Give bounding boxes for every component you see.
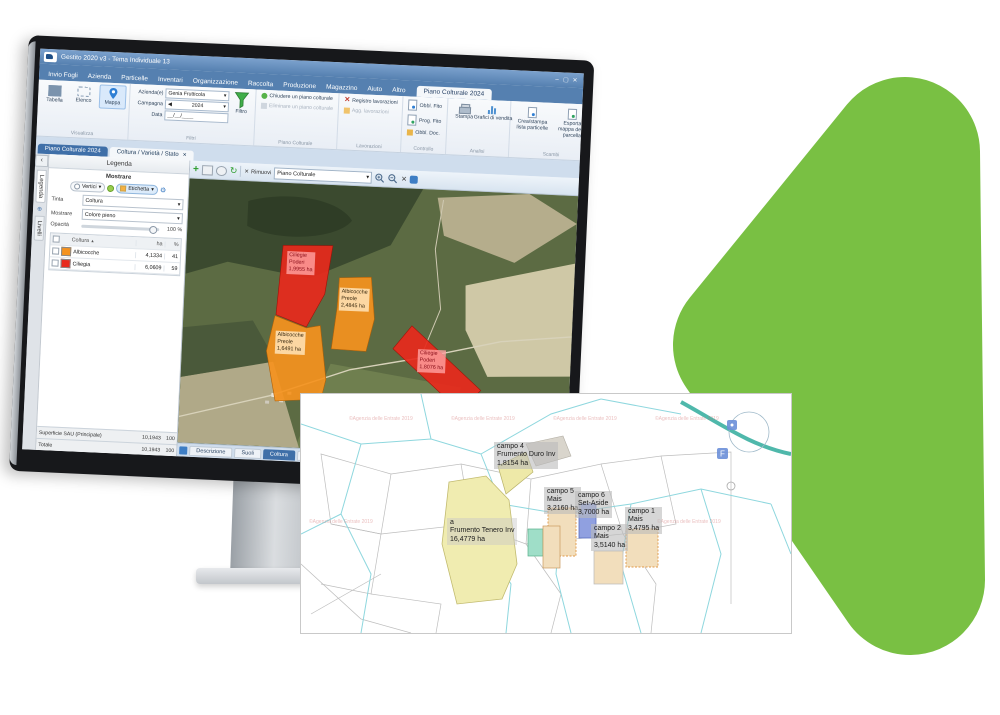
opacity-value: 100 %	[162, 226, 182, 233]
opacity-slider[interactable]	[81, 224, 159, 231]
legend-panel: Legenda Mostrare Vertici ▾ Etichetta	[36, 154, 190, 456]
crop-ha: 6,0609	[134, 264, 163, 271]
vertici-label: Vertici	[82, 184, 97, 191]
crop-name: Ciliegia	[72, 261, 134, 270]
rimuovi-label: Rimuovi	[251, 169, 271, 176]
document-icon	[408, 114, 417, 125]
tinta-value: Coltura	[85, 197, 103, 204]
green-dot-icon	[261, 93, 267, 99]
refresh-button[interactable]: ↻	[230, 166, 238, 175]
remove-icon: ✕	[244, 169, 249, 175]
row-checkbox[interactable]	[52, 247, 59, 254]
info-icon[interactable]	[410, 175, 418, 183]
circle-select-tool[interactable]	[216, 165, 227, 175]
summary-ha: 10,1943	[135, 434, 161, 441]
etichetta-toggle[interactable]: Etichetta ▾	[116, 183, 158, 195]
chiudi-piano-label: Chiudere un piano colturale	[269, 93, 333, 102]
opacita-label: Opacità	[50, 221, 78, 228]
chevron-down-icon: ▾	[178, 202, 181, 208]
elimina-piano-button[interactable]: Eliminare un piano colturale	[259, 102, 335, 113]
tab-coltura[interactable]: Coltura	[263, 449, 295, 460]
col-ha[interactable]: ha	[135, 240, 164, 247]
registro-label: Registro lavorazioni	[352, 97, 398, 105]
funnel-icon	[234, 92, 250, 110]
obbl-fito-label: Obbl. Fito	[419, 102, 442, 109]
sort-asc-icon: ▲	[90, 238, 94, 243]
filter-fields: Azienda(e) Genia Frutticola ▾ Campagna ◀…	[132, 86, 229, 124]
map-pin-icon	[108, 88, 118, 99]
document-export-icon	[568, 109, 577, 120]
agg-lavorazioni-button[interactable]: Agg. lavorazioni	[342, 106, 391, 116]
field-label: AlbicocchePreole2,4845 ha	[339, 287, 370, 311]
slider-thumb[interactable]	[149, 225, 157, 233]
ribbon-group-scambi: Crea/stampa lista particelle Esporta map…	[509, 101, 583, 161]
field-albicocche-2[interactable]	[264, 315, 328, 403]
azienda-value: Genia Frutticola	[168, 91, 205, 99]
grafici-button[interactable]: Grafici di vendita	[479, 102, 507, 125]
legend-table: Coltura ▲ ha % Albicocche 4,1334 41	[48, 232, 182, 276]
panel-icon	[179, 446, 187, 454]
crop-pct: 59	[163, 265, 179, 272]
elenco-label: Elenco	[75, 97, 91, 104]
label-swatch-icon	[120, 185, 126, 191]
lasso-icon	[77, 86, 90, 97]
campagna-value: 2024	[192, 103, 204, 110]
printer-icon	[459, 104, 470, 113]
document-icon	[408, 99, 417, 110]
data-input[interactable]: __/__/____	[164, 110, 228, 123]
filtro-button[interactable]: Filtro	[230, 90, 252, 116]
etichetta-label: Etichetta	[128, 186, 149, 193]
grafici-label: Grafici di vendita	[474, 114, 513, 122]
red-x-icon: ✕	[344, 96, 350, 103]
crea-lista-button[interactable]: Crea/stampa lista particelle	[513, 103, 552, 135]
label-frumento-tenero: aFrumento Tenero Inv16,4779 ha	[447, 518, 517, 545]
field-label: AlbicocchePreole1,6491 ha	[275, 331, 306, 355]
parcel-tan[interactable]	[543, 526, 560, 568]
esporta-mappa-label: Esporta mappa della parcella	[555, 120, 583, 140]
parcel-green[interactable]	[528, 529, 543, 556]
colore-select[interactable]: Colore pieno ▾	[82, 209, 183, 225]
data-label: Data	[132, 111, 162, 118]
tabella-label: Tabella	[46, 97, 63, 104]
page: { "ui": { "caret": "▾", "sort_icon": "▲"…	[0, 0, 1000, 715]
tinta-select[interactable]: Coltura ▾	[82, 195, 183, 211]
divider	[240, 166, 241, 177]
ribbon-group-piano: Chiudere un piano colturale Eliminare un…	[254, 90, 339, 150]
registro-lavorazioni-button[interactable]: ✕ Registro lavorazioni	[342, 95, 400, 107]
swatch-col	[62, 236, 70, 243]
watermark: ©Agenzia delle Entrate 2019	[657, 519, 721, 525]
color-swatch-albicocche	[61, 247, 71, 256]
azienda-label: Azienda(e)	[133, 89, 163, 96]
marker-dot	[731, 424, 734, 427]
prog-fito-label: Prog. Fito	[419, 117, 442, 124]
mappa-label: Mappa	[104, 100, 120, 107]
elimina-piano-label: Eliminare un piano colturale	[269, 103, 333, 112]
watermark: ©Agenzia delle Entrate 2019	[451, 416, 515, 422]
obbl-fito-button[interactable]: Obbl. Fito	[406, 98, 444, 113]
summary-pct: 100	[161, 435, 175, 442]
add-feature-button[interactable]: +	[193, 164, 199, 174]
close-button[interactable]: ✕	[570, 77, 579, 84]
document-check-icon	[528, 107, 537, 118]
zoom-out-icon[interactable]	[388, 173, 398, 183]
watermark: ©Agenzia delle Entrate 2019	[553, 416, 617, 422]
maximize-button[interactable]: ▢	[561, 76, 570, 83]
ribbon-group-controllo: Obbl. Fito Prog. Fito Obbl. Doc. Control…	[401, 96, 448, 154]
prog-fito-button[interactable]: Prog. Fito	[406, 113, 444, 128]
color-swatch-ciliegia	[60, 259, 70, 268]
layer-value: Piano Colturale	[277, 170, 315, 178]
crop-ha: 4,1334	[135, 252, 164, 259]
rect-select-tool[interactable]	[202, 165, 213, 175]
chevron-down-icon: ▾	[366, 174, 369, 180]
watermark: ©Agenzia delle Entrate 2019	[655, 416, 719, 422]
col-coltura[interactable]: Coltura ▲	[72, 237, 136, 246]
esporta-mappa-button[interactable]: Esporta mappa della parcella	[553, 105, 583, 143]
tab-descrizione[interactable]: Descrizione	[189, 445, 233, 457]
campagna-label: Campagna	[133, 100, 163, 107]
colore-value: Colore pieno	[85, 211, 116, 218]
ribbon-group-filtri: Azienda(e) Genia Frutticola ▾ Campagna ◀…	[128, 84, 256, 146]
ribbon-group-visualizza: Tabella Elenco Mappa Visualizza	[36, 80, 130, 140]
filtro-label: Filtro	[235, 109, 247, 116]
tab-suoli[interactable]: Suoli	[234, 447, 261, 458]
chevron-down-icon: ▾	[223, 104, 226, 110]
side-tab-livelli[interactable]: Livelli	[33, 216, 44, 241]
parcel-campo2[interactable]	[594, 551, 623, 584]
layers-icon: ⊕	[37, 206, 42, 213]
spin-left-icon[interactable]: ◀	[168, 101, 172, 107]
parcel-campo1[interactable]	[626, 529, 658, 567]
chevron-down-icon: ▾	[98, 184, 101, 190]
close-icon[interactable]: ✕	[182, 152, 186, 158]
table-icon	[48, 85, 61, 97]
data-value: __/__/____	[167, 112, 193, 119]
yellow-square-icon	[344, 107, 350, 113]
agg-label: Agg. lavorazioni	[352, 108, 389, 116]
legend-settings-button[interactable]: ⚙	[160, 187, 167, 194]
zoom-in-icon[interactable]	[375, 172, 385, 182]
vertici-toggle[interactable]: Vertici ▾	[70, 181, 106, 193]
chevron-down-icon: ▾	[224, 93, 227, 99]
marker-f-glyph: F	[720, 450, 725, 459]
summary-ha: 10,1943	[134, 446, 160, 453]
select-all-checkbox[interactable]	[53, 235, 60, 242]
app-logo-icon	[44, 51, 57, 62]
collapse-panel-button[interactable]: ‹	[35, 155, 49, 168]
yellow-square-icon	[407, 129, 413, 135]
elenco-button[interactable]: Elenco	[70, 83, 98, 107]
leaf-icon	[107, 184, 114, 191]
crop-pct: 41	[164, 253, 180, 260]
label-campo2: campo 2Mais3,5140 ha	[591, 524, 628, 551]
rimuovi-button[interactable]: ✕ Rimuovi	[244, 169, 271, 176]
crop-name: Albicocche	[73, 249, 135, 258]
summary-label: Totale	[38, 441, 134, 451]
cadastral-map-overlay: F ©Agenzia delle Entrate 2019 ©Agenzia d…	[300, 393, 792, 634]
label-campo1: campo 1Mais3,4795 ha	[625, 507, 662, 534]
radio-icon	[74, 183, 80, 189]
crea-lista-label: Crea/stampa lista particelle	[515, 118, 550, 132]
mostrare-label: Mostrare	[51, 210, 79, 217]
stampa-label: Stampa	[455, 114, 473, 121]
minimize-button[interactable]: –	[552, 76, 561, 82]
watermark: ©Agenzia delle Entrate 2019	[309, 519, 373, 525]
chevron-down-icon: ▾	[177, 216, 180, 222]
field-label: CiliegiePoderi1,8076 ha	[417, 349, 446, 373]
tabella-button[interactable]: Tabella	[41, 82, 69, 107]
layer-select[interactable]: Piano Colturale ▾	[274, 167, 372, 183]
watermark: ©Agenzia delle Entrate 2019	[349, 416, 413, 422]
obbl-doc-label: Obbl. Doc.	[415, 130, 440, 137]
label-campo6: campo 6Set-Aside3,7000 ha	[575, 491, 612, 518]
summary-pct: 100	[160, 447, 174, 454]
ribbon-group-analisi: Stampa Grafici di vendita Analisi	[446, 98, 511, 157]
clear-search-icon[interactable]: ✕	[401, 175, 407, 183]
bar-chart-icon	[488, 105, 499, 114]
obbl-doc-button[interactable]: Obbl. Doc.	[405, 128, 442, 138]
chevron-down-icon: ▾	[151, 187, 154, 193]
gray-square-icon	[261, 103, 267, 109]
group-label: Controllo	[404, 144, 442, 154]
field-label: CiliegiePoderi1,9955 ha	[286, 251, 315, 275]
tinta-label: Tinta	[51, 196, 79, 203]
mappa-button[interactable]: Mappa	[99, 84, 127, 109]
ribbon-group-lavorazioni: ✕ Registro lavorazioni Agg. lavorazioni …	[337, 93, 404, 152]
label-campo4: campo 4Frumento Duro Inv1,8154 ha	[494, 442, 558, 469]
col-pct[interactable]: %	[164, 241, 180, 248]
row-checkbox[interactable]	[51, 259, 58, 266]
side-tab-legenda[interactable]: Legenda	[35, 170, 47, 204]
